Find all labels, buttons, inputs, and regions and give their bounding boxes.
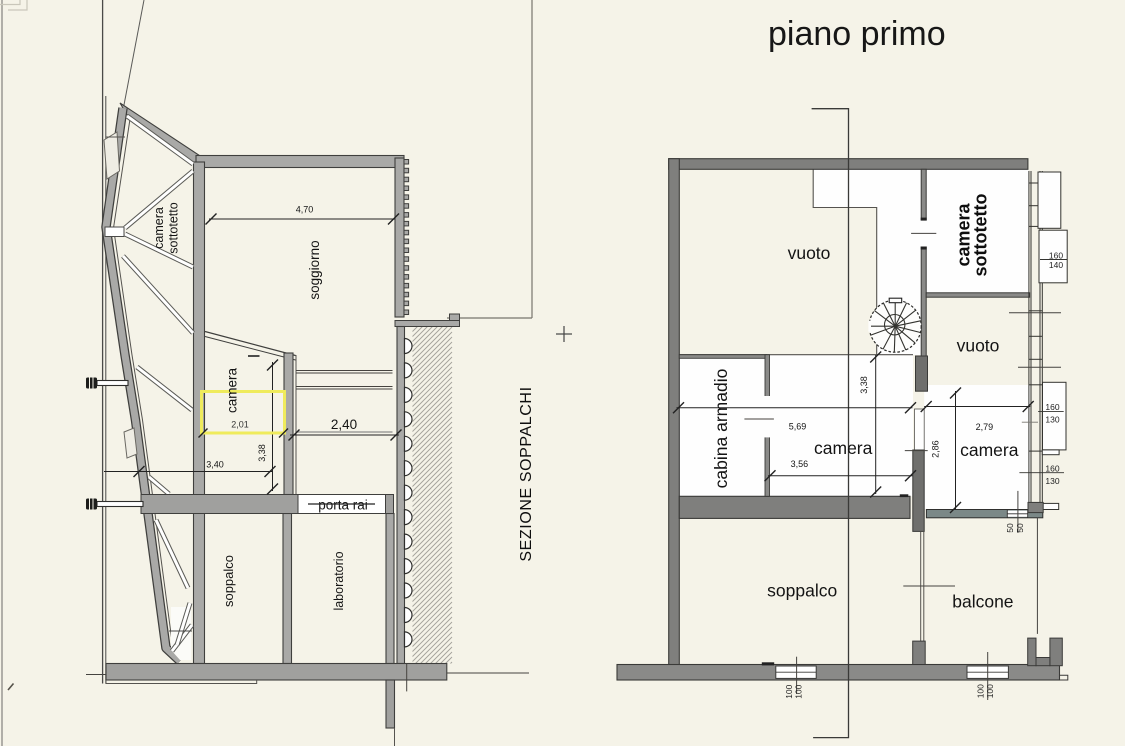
svg-text:130: 130 xyxy=(1045,476,1059,486)
svg-text:2,01: 2,01 xyxy=(231,420,249,430)
svg-text:140: 140 xyxy=(1049,260,1063,270)
svg-text:3,40: 3,40 xyxy=(206,460,224,470)
svg-text:160: 160 xyxy=(1049,251,1063,261)
svg-text:4,70: 4,70 xyxy=(296,205,314,215)
svg-text:soppalco: soppalco xyxy=(767,581,837,601)
svg-text:5,69: 5,69 xyxy=(789,422,807,432)
svg-text:sottotetto: sottotetto xyxy=(167,202,181,253)
svg-text:camera: camera xyxy=(225,368,240,414)
svg-text:SEZIONE SOPPALCHI: SEZIONE SOPPALCHI xyxy=(518,386,535,561)
svg-text:160: 160 xyxy=(1045,402,1059,412)
svg-text:piano primo: piano primo xyxy=(768,15,946,53)
svg-text:2,79: 2,79 xyxy=(976,422,994,432)
svg-text:vuoto: vuoto xyxy=(788,243,831,263)
svg-text:50: 50 xyxy=(1005,523,1015,533)
svg-text:camera: camera xyxy=(152,207,166,249)
svg-text:50: 50 xyxy=(1015,523,1025,533)
svg-text:130: 130 xyxy=(1045,415,1059,425)
svg-text:2,40: 2,40 xyxy=(331,417,357,432)
svg-text:100: 100 xyxy=(976,684,986,698)
svg-text:sottotetto: sottotetto xyxy=(971,194,991,277)
svg-text:balcone: balcone xyxy=(952,592,1013,612)
svg-text:soppalco: soppalco xyxy=(221,555,236,607)
svg-text:camera: camera xyxy=(960,440,1019,460)
svg-text:soggiorno: soggiorno xyxy=(307,240,322,299)
svg-text:100: 100 xyxy=(794,684,804,698)
svg-text:100: 100 xyxy=(784,684,794,698)
svg-text:cabina armadio: cabina armadio xyxy=(711,369,731,489)
svg-text:3,38: 3,38 xyxy=(257,444,267,462)
svg-text:3,38: 3,38 xyxy=(859,376,869,394)
svg-text:3,56: 3,56 xyxy=(791,459,809,469)
svg-text:camera: camera xyxy=(814,438,873,458)
svg-text:100: 100 xyxy=(985,684,995,698)
svg-text:laboratorio: laboratorio xyxy=(332,551,346,610)
svg-text:160: 160 xyxy=(1045,464,1059,474)
svg-text:porta rai: porta rai xyxy=(318,498,368,513)
svg-text:2,86: 2,86 xyxy=(931,440,941,458)
svg-text:vuoto: vuoto xyxy=(957,336,1000,356)
